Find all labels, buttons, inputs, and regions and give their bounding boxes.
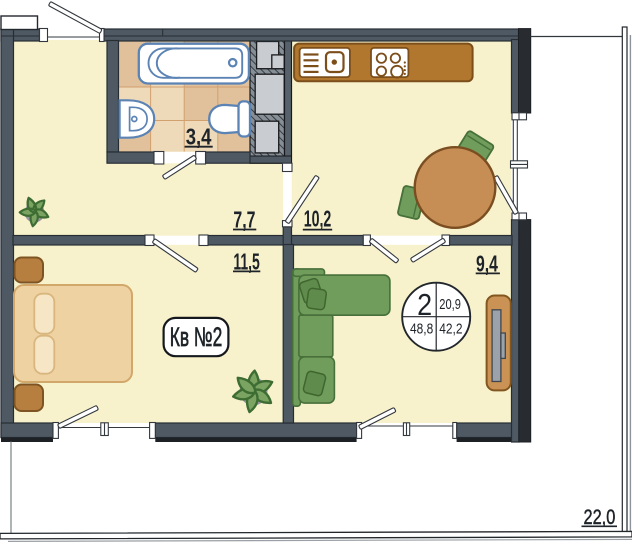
svg-text:9,4: 9,4 — [476, 250, 498, 276]
svg-text:10,2: 10,2 — [304, 206, 332, 232]
svg-text:20,9: 20,9 — [439, 296, 461, 313]
svg-text:7,7: 7,7 — [233, 206, 255, 232]
svg-text:2: 2 — [417, 287, 432, 322]
svg-text:42,2: 42,2 — [439, 321, 462, 338]
svg-text:Кв №2: Кв №2 — [170, 322, 223, 352]
svg-text:48,8: 48,8 — [410, 321, 433, 338]
svg-text:3,4: 3,4 — [186, 124, 212, 150]
